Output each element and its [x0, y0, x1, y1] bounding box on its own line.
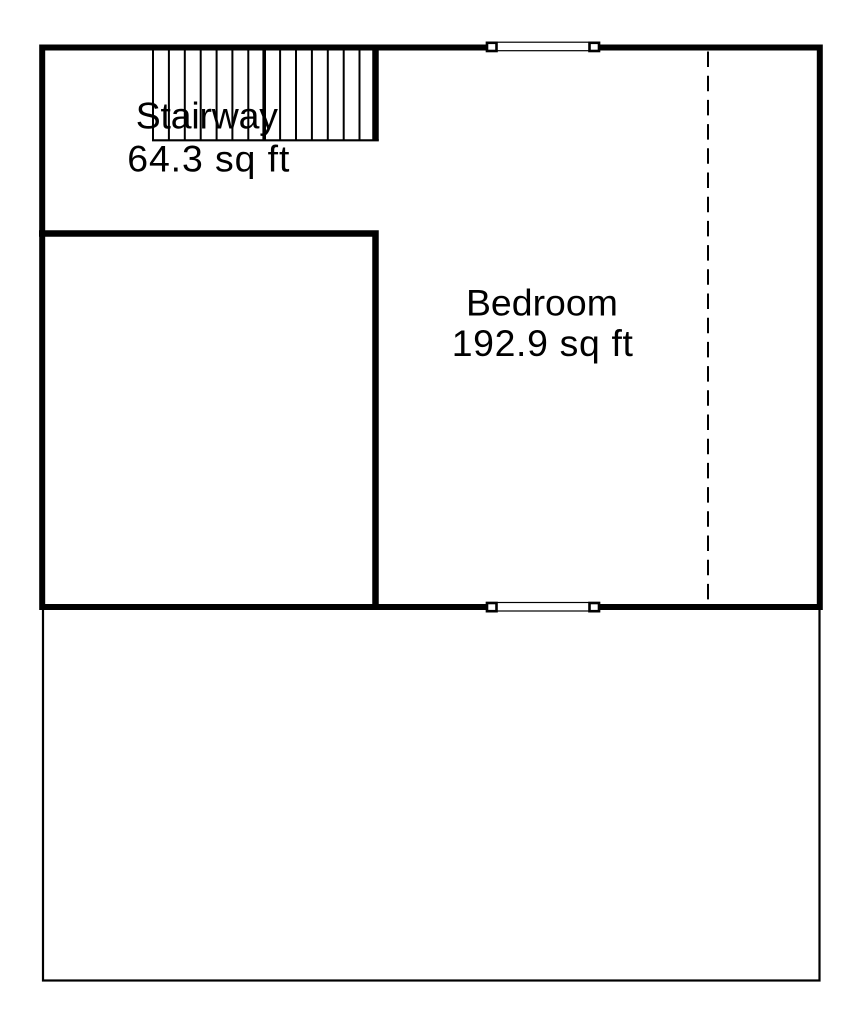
- svg-text:192.9 sq ft: 192.9 sq ft: [452, 322, 634, 364]
- svg-text:Stairway: Stairway: [136, 95, 278, 137]
- svg-text:64.3 sq ft: 64.3 sq ft: [127, 138, 290, 180]
- svg-text:Bedroom: Bedroom: [466, 281, 618, 323]
